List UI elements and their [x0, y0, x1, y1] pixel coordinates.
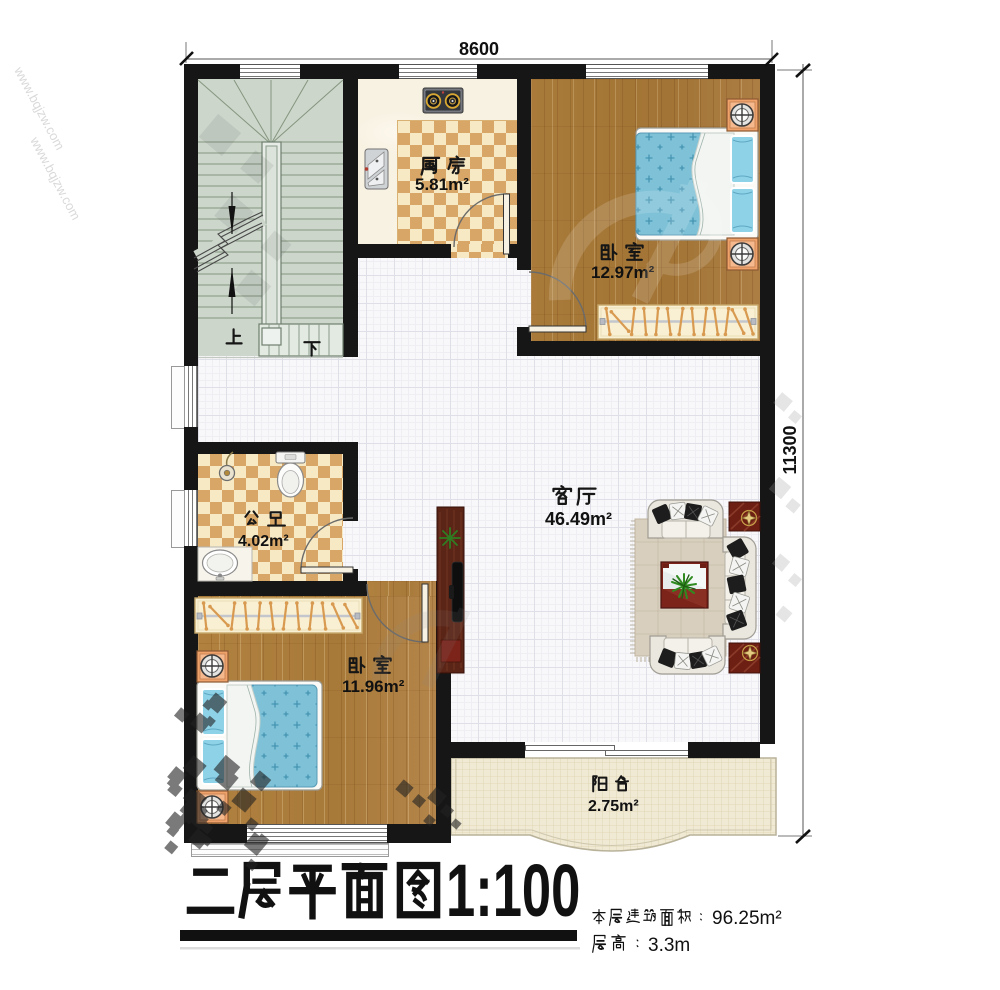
- svg-text:5.81m²: 5.81m²: [415, 175, 469, 194]
- svg-text:4.02m²: 4.02m²: [238, 533, 289, 550]
- svg-text:96.25m²: 96.25m²: [712, 908, 782, 929]
- svg-text:46.49m²: 46.49m²: [545, 509, 612, 529]
- svg-text:11300: 11300: [780, 425, 800, 474]
- svg-text:8600: 8600: [459, 39, 499, 59]
- svg-text:1:100: 1:100: [446, 849, 580, 932]
- svg-text:2.75m²: 2.75m²: [588, 798, 639, 815]
- svg-text:3.3m: 3.3m: [648, 935, 690, 956]
